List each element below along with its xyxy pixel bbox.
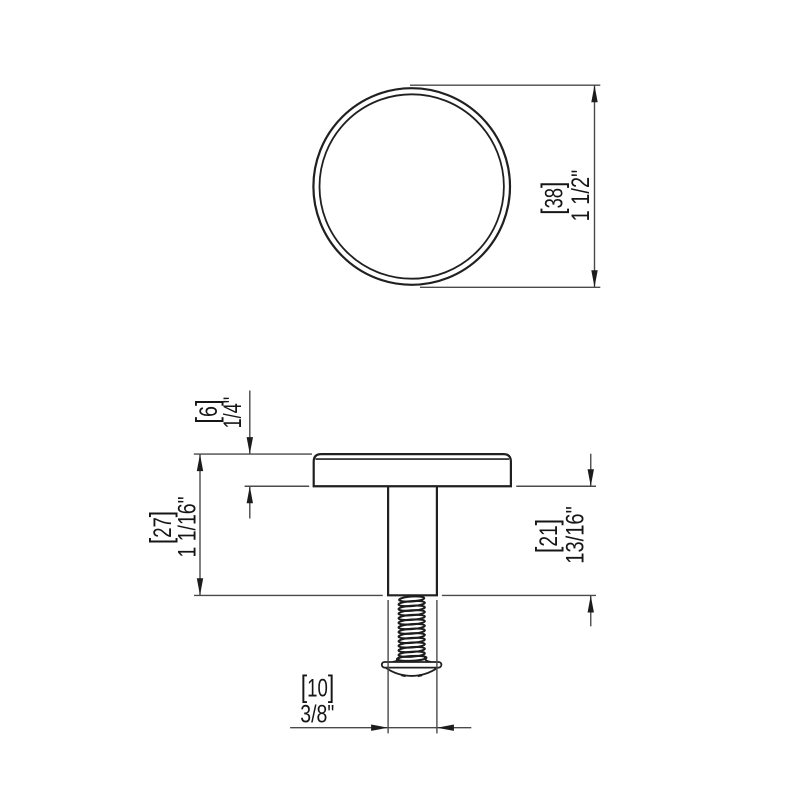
svg-text:13/16": 13/16" — [562, 506, 590, 564]
svg-text:3/8": 3/8" — [300, 701, 334, 729]
svg-text:1 1/2": 1 1/2" — [567, 170, 595, 222]
svg-text:[38]: [38] — [534, 182, 569, 215]
svg-text:1/4": 1/4" — [219, 397, 247, 429]
svg-text:1 1/16": 1 1/16" — [174, 497, 202, 558]
svg-text:[10]: [10] — [301, 669, 335, 704]
svg-text:[21]: [21] — [529, 519, 564, 554]
